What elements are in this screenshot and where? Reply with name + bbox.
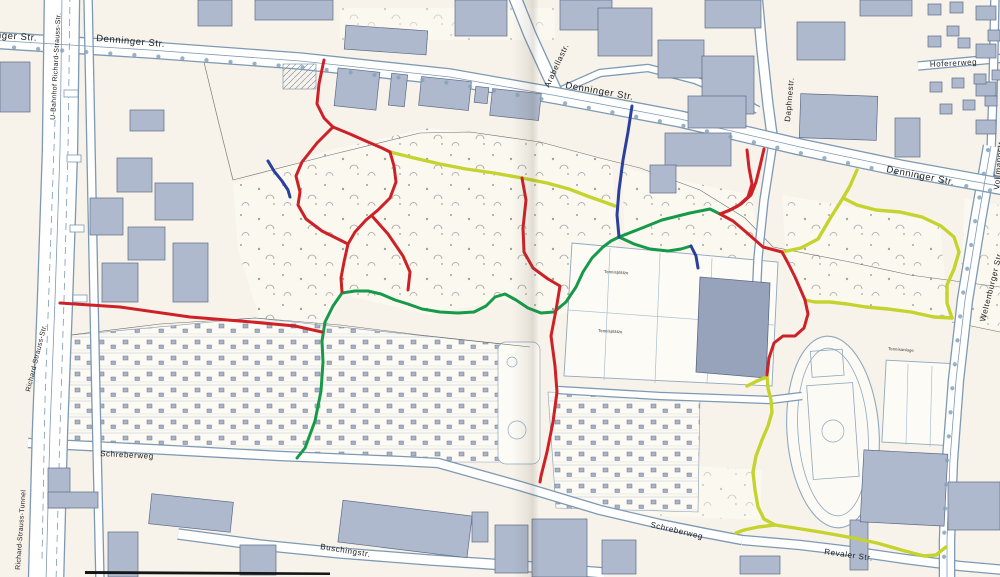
hatched-construction-plot: [283, 64, 316, 89]
building: [799, 94, 877, 141]
ubahn-station-mark: [70, 225, 84, 232]
building: [958, 38, 970, 48]
building: [128, 227, 165, 260]
building: [90, 198, 123, 235]
building-sports-hall: [696, 277, 770, 378]
building: [658, 40, 704, 78]
building: [48, 492, 98, 508]
building: [952, 78, 964, 88]
ubahn-station-mark: [73, 295, 87, 302]
building: [255, 0, 333, 20]
building: [688, 96, 746, 128]
ubahn-station-mark: [67, 155, 81, 162]
building: [602, 540, 636, 574]
building: [173, 243, 208, 302]
building: [976, 120, 996, 134]
building: [665, 133, 731, 166]
building: [928, 36, 941, 47]
building: [198, 0, 232, 26]
building: [117, 158, 152, 192]
building: [985, 96, 997, 106]
building: [974, 74, 986, 84]
building: [130, 110, 164, 131]
building: [102, 263, 138, 302]
building: [155, 183, 193, 220]
building: [950, 2, 963, 13]
paper-fold-crease: [512, 0, 548, 577]
building: [976, 6, 996, 20]
allotment-huts-texture: [548, 392, 700, 512]
building: [850, 520, 868, 570]
building: [0, 62, 30, 112]
building: [740, 556, 780, 574]
building: [948, 482, 1000, 530]
building: [963, 100, 975, 110]
building: [895, 118, 920, 157]
building: [976, 44, 996, 58]
building: [705, 0, 761, 28]
building: [598, 8, 652, 56]
building: [472, 512, 488, 542]
building: [930, 82, 942, 92]
building: [947, 26, 959, 36]
map-canvas: Denninger Str. Denninger Str. Denninger …: [0, 0, 1000, 577]
building: [650, 165, 676, 193]
building: [108, 532, 138, 577]
building: [940, 104, 952, 114]
scanned-city-map: Denninger Str. Denninger Str. Denninger …: [0, 0, 1000, 577]
building: [474, 86, 489, 103]
ubahn-station-mark: [64, 90, 78, 97]
building: [928, 4, 941, 15]
building: [455, 0, 507, 36]
building: [988, 30, 1000, 41]
building: [992, 70, 1000, 80]
building: [860, 450, 948, 526]
building: [240, 545, 276, 575]
building: [797, 22, 845, 60]
building: [860, 0, 912, 16]
